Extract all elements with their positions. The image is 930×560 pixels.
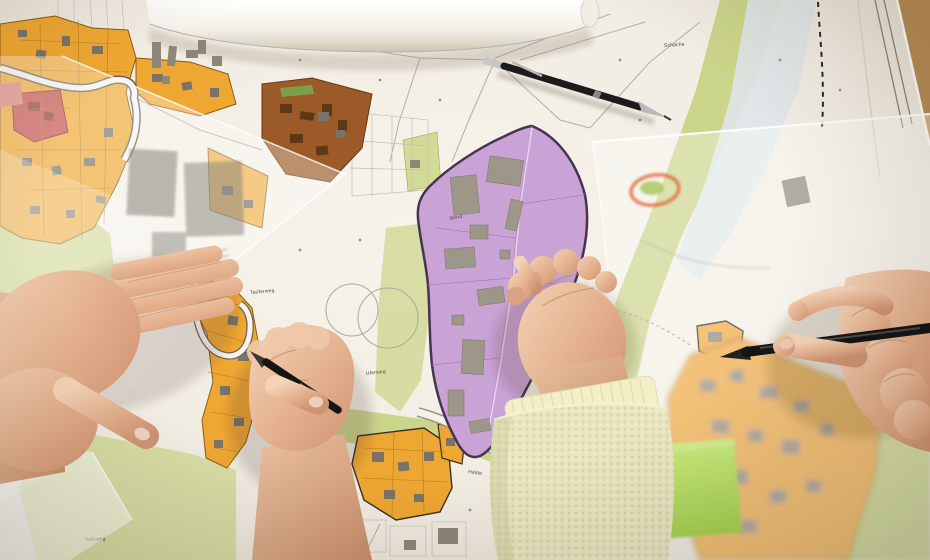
pencil-ring [594, 93, 600, 96]
scene-canvas: Schache Werd Uferweg Halde holzweg Taufe… [0, 0, 930, 560]
fist-thumb-nail [309, 397, 323, 408]
hand-right-thumb [786, 345, 856, 356]
green-blob [640, 181, 664, 195]
index-fingertip [788, 301, 808, 321]
roll-end [581, 0, 599, 27]
photo-planning-workshop: Schache Werd Uferweg Halde holzweg Taufe… [0, 0, 930, 560]
sleeve-body [490, 403, 674, 560]
